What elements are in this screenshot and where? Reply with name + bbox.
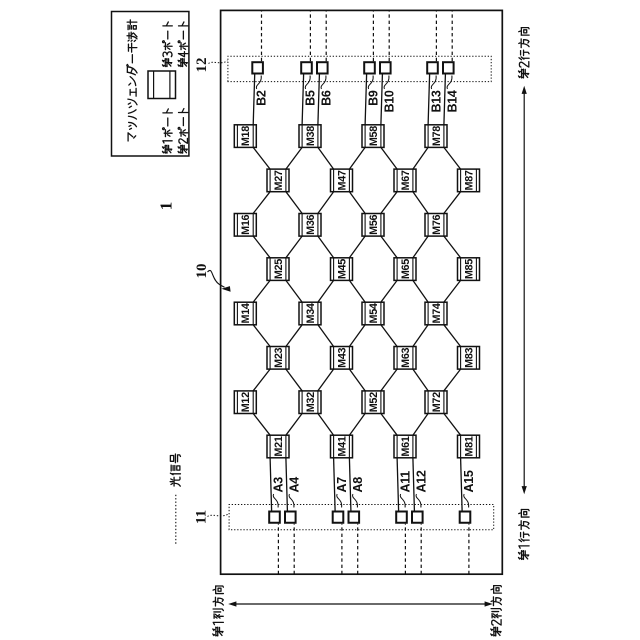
svg-text:M38: M38 bbox=[305, 126, 317, 146]
svg-text:M58: M58 bbox=[368, 126, 380, 146]
svg-text:M61: M61 bbox=[400, 436, 412, 456]
svg-text:M14: M14 bbox=[240, 303, 252, 323]
svg-text:M65: M65 bbox=[400, 259, 412, 279]
svg-text:M56: M56 bbox=[368, 214, 380, 234]
svg-text:M52: M52 bbox=[368, 392, 380, 412]
svg-text:M67: M67 bbox=[400, 170, 412, 190]
svg-text:M83: M83 bbox=[463, 347, 475, 367]
svg-text:B6: B6 bbox=[319, 90, 333, 106]
svg-text:B14: B14 bbox=[445, 90, 459, 112]
svg-text:M76: M76 bbox=[431, 214, 443, 234]
svg-text:M81: M81 bbox=[463, 436, 475, 456]
svg-text:M25: M25 bbox=[273, 259, 285, 279]
svg-text:12: 12 bbox=[194, 58, 210, 73]
svg-text:M23: M23 bbox=[273, 347, 285, 367]
svg-text:A12: A12 bbox=[414, 470, 428, 492]
svg-text:M43: M43 bbox=[336, 347, 348, 367]
svg-text:M41: M41 bbox=[336, 436, 348, 456]
svg-text:B10: B10 bbox=[382, 90, 396, 112]
svg-text:A8: A8 bbox=[351, 477, 365, 493]
svg-text:M85: M85 bbox=[463, 259, 475, 279]
svg-text:B2: B2 bbox=[255, 90, 269, 106]
svg-text:A15: A15 bbox=[462, 470, 476, 492]
svg-text:B9: B9 bbox=[367, 90, 381, 106]
svg-text:M87: M87 bbox=[463, 170, 475, 190]
svg-text:M32: M32 bbox=[305, 392, 317, 412]
svg-text:M72: M72 bbox=[431, 392, 443, 412]
svg-text:1: 1 bbox=[157, 202, 176, 211]
svg-text:11: 11 bbox=[193, 510, 209, 524]
svg-text:M78: M78 bbox=[431, 126, 443, 146]
svg-text:M18: M18 bbox=[240, 126, 252, 146]
svg-text:M12: M12 bbox=[240, 392, 252, 412]
svg-text:M45: M45 bbox=[336, 259, 348, 279]
svg-text:M36: M36 bbox=[305, 214, 317, 234]
svg-text:A11: A11 bbox=[399, 471, 413, 493]
svg-text:M27: M27 bbox=[273, 170, 285, 190]
svg-text:M34: M34 bbox=[305, 303, 317, 323]
svg-text:M74: M74 bbox=[431, 303, 443, 323]
svg-text:10: 10 bbox=[194, 264, 210, 279]
svg-text:A4: A4 bbox=[287, 477, 301, 493]
svg-text:M21: M21 bbox=[273, 436, 285, 456]
svg-text:M16: M16 bbox=[240, 214, 252, 234]
svg-text:M54: M54 bbox=[368, 303, 380, 323]
svg-text:A7: A7 bbox=[335, 477, 349, 493]
svg-text:M47: M47 bbox=[336, 170, 348, 190]
svg-text:M63: M63 bbox=[400, 347, 412, 367]
svg-text:B13: B13 bbox=[430, 90, 444, 112]
svg-text:B5: B5 bbox=[304, 90, 318, 106]
svg-text:A3: A3 bbox=[272, 477, 286, 493]
